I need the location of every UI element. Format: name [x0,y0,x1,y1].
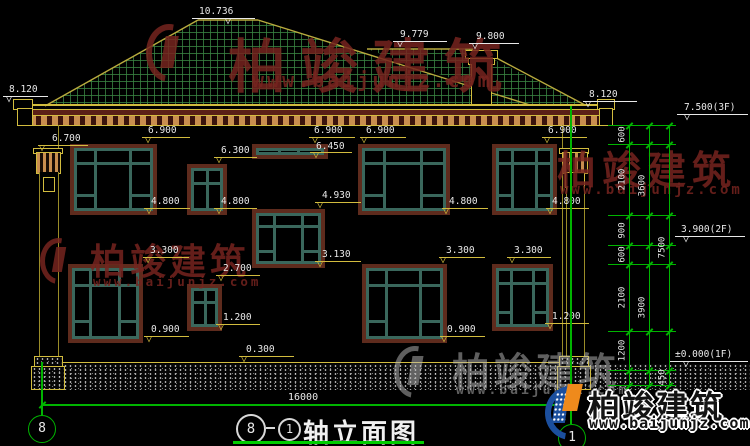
dim-chain-line [669,125,670,385]
elevation-mark-triangle: ▽ [585,100,591,110]
elevation-label: 9.800 [476,31,505,42]
elevation-label: 0.900 [447,324,476,335]
elevation-label: 6.900 [366,125,395,136]
elevation-mark-triangle: ▽ [547,322,553,332]
elevation-mark-triangle: ▽ [440,256,446,266]
elevation-label: 7.500(3F) [684,102,735,113]
watermark-website-text: www.baijunjz.com [93,274,261,289]
elevation-mark-triangle: ▽ [313,151,319,161]
window-mullion [75,320,91,323]
left-column-detail [43,177,55,192]
window-mullion [118,320,136,323]
dimension-value: 7500 [658,231,669,265]
elevation-label: 6.700 [52,133,81,144]
eave-right-cap2 [599,108,613,126]
watermark-website-text: www.baijunjz.com [560,182,743,198]
elevation-mark-triangle: ▽ [684,113,690,123]
axis-line-right [570,106,572,424]
dimension-value: 3900 [638,291,649,325]
elevation-label: 0.300 [246,344,275,355]
elevation-mark-triangle: ▽ [218,323,224,333]
window-mullion [273,216,276,261]
elevation-label: 9.779 [400,29,429,40]
elevation-mark-line [239,356,294,357]
elevation-label: 6.450 [316,141,345,152]
elevation-mark-triangle: ▽ [472,42,478,52]
window [362,264,447,343]
elevation-label: 8.120 [9,84,38,95]
window-frame [366,268,443,339]
window [492,144,557,215]
elevation-mark-triangle: ▽ [145,136,151,146]
eave-left-cap2 [17,108,33,126]
elevation-mark-triangle: ▽ [317,260,323,270]
window-mullion [365,162,443,165]
window-frame [74,148,153,211]
elevation-label: 4.800 [151,196,180,207]
elevation-label: 2.700 [223,263,252,274]
total-width-dimension: 16000 [288,392,318,403]
window-mullion [383,151,386,208]
elevation-label: 4.930 [322,190,351,201]
eave-top-line [30,104,600,106]
window-mullion [499,162,550,165]
window-mullion [535,151,538,208]
elevation-mark-triangle: ▽ [397,40,403,50]
window-mullion [419,320,440,323]
elevation-mark-triangle: ▽ [683,235,689,245]
window-mullion [259,225,318,228]
elevation-mark-triangle: ▽ [683,360,689,370]
elevation-mark-triangle: ▽ [218,274,224,284]
elevation-label: 3.130 [322,249,351,260]
elevation-label: 4.800 [221,196,250,207]
elevation-mark-triangle: ▽ [145,256,151,266]
company-logo: 柏竣建筑 www.baijunjz.com [543,380,750,432]
window [70,144,157,215]
window-mullion [420,151,423,208]
elevation-label: 6.900 [548,125,577,136]
elevation-mark-triangle: ▽ [39,144,45,154]
window-mullion [420,194,443,197]
elevation-drawing-canvas: 柏竣建筑www.baijunjz.com柏竣建筑www.baijunjz.com… [0,0,750,446]
elevation-mark-triangle: ▽ [216,156,222,166]
watermark-website-text: www.baijunjz.com [252,68,493,92]
elevation-mark-triangle: ▽ [443,207,449,217]
elevation-label: 6.900 [148,125,177,136]
window-frame [256,213,321,264]
elevation-mark-triangle: ▽ [241,355,247,365]
title-bubble-1: 1 [278,418,301,441]
elevation-label: 1.200 [223,312,252,323]
window-mullion [365,194,385,197]
elevation-mark-triangle: ▽ [509,256,515,266]
dimension-value: 2100 [618,281,629,315]
elevation-mark-triangle: ▽ [225,17,231,27]
logo-website: www.baijunjz.com [589,414,750,432]
window-mullion [499,311,511,314]
window-mullion [419,271,422,336]
window-mullion [129,194,150,197]
axis-bubble-8: 8 [28,415,56,443]
window-mullion [94,151,97,208]
window-mullion [499,194,512,197]
level-line [608,331,676,332]
elevation-mark-triangle: ▽ [441,335,447,345]
dim-chain-line [629,125,630,385]
elevation-mark-triangle: ▽ [146,207,152,217]
window-mullion [259,250,274,253]
elevation-label: 4.800 [552,196,581,207]
dim-chain-line [649,125,650,385]
elevation-label: 6.900 [314,125,343,136]
elevation-label: 3.300 [150,245,179,256]
elevation-mark-triangle: ▽ [216,207,222,217]
total-dimension-line [42,404,571,406]
window-frame [191,168,223,211]
elevation-mark-line [192,18,255,19]
window-frame [191,288,218,327]
window [492,264,553,331]
elevation-mark-triangle: ▽ [361,136,367,146]
window [252,209,325,268]
elevation-mark-triangle: ▽ [146,335,152,345]
window-mullion [532,271,535,324]
elevation-mark-line [38,145,88,146]
left-column-footing [31,366,65,390]
window-mullion [206,171,209,208]
window-mullion [194,182,220,185]
window-mullion [499,282,546,285]
elevation-label: 6.300 [221,145,250,156]
window-mullion [77,194,96,197]
left-column-capital [36,152,61,174]
window-mullion [510,271,513,324]
window-mullion [278,151,281,152]
window-mullion [194,301,215,304]
window-frame [496,268,549,327]
elevation-mark-triangle: ▽ [547,207,553,217]
window-mullion [297,151,300,152]
elevation-label: 3.300 [514,245,543,256]
dimension-value: 3600 [638,169,649,203]
dimension-value: 600 [618,238,629,272]
title-separator [266,427,275,429]
window-frame [496,148,553,211]
right-column-shaft [566,186,585,356]
window-mullion [369,320,387,323]
window-mullion [301,216,304,261]
window-mullion [532,311,546,314]
window-mullion [385,271,388,336]
elevation-label: 4.800 [449,196,478,207]
elevation-mark-triangle: ▽ [544,136,550,146]
window-mullion [369,284,440,287]
elevation-mark-line [583,101,637,102]
window-mullion [204,291,207,324]
axis-line-left [41,362,43,416]
window-mullion [511,151,514,208]
window-mullion [77,162,150,165]
window-mullion [129,151,132,208]
elevation-label: 3.300 [446,245,475,256]
elevation-label: 1.200 [552,311,581,322]
window-mullion [535,194,550,197]
elevation-label: 0.900 [151,324,180,335]
elevation-mark-triangle: ▽ [6,95,12,105]
window [358,144,450,215]
dimension-value: 600 [618,118,629,152]
window-mullion [301,250,318,253]
title-underline [233,441,424,444]
title-bubble-8: 8 [236,414,266,444]
elevation-mark-line [670,361,748,362]
elevation-mark-triangle: ▽ [317,201,323,211]
dimension-value: 1200 [618,334,629,368]
elevation-label: 8.120 [589,89,618,100]
dimension-value: 2100 [618,163,629,197]
window-frame [362,148,446,211]
